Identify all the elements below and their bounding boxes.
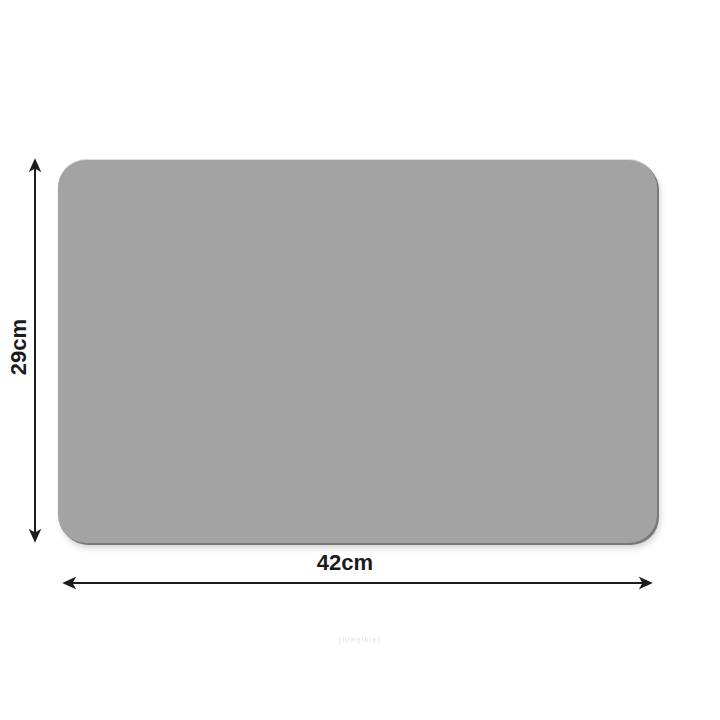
height-dimension-label: 29cm (7, 307, 31, 387)
watermark-text: (illegible) (290, 635, 430, 645)
width-dimension-label: 42cm (285, 551, 405, 575)
product-dimension-diagram: 29cm 42cm (illegible) (0, 0, 720, 720)
placemat-rectangle (58, 160, 657, 543)
